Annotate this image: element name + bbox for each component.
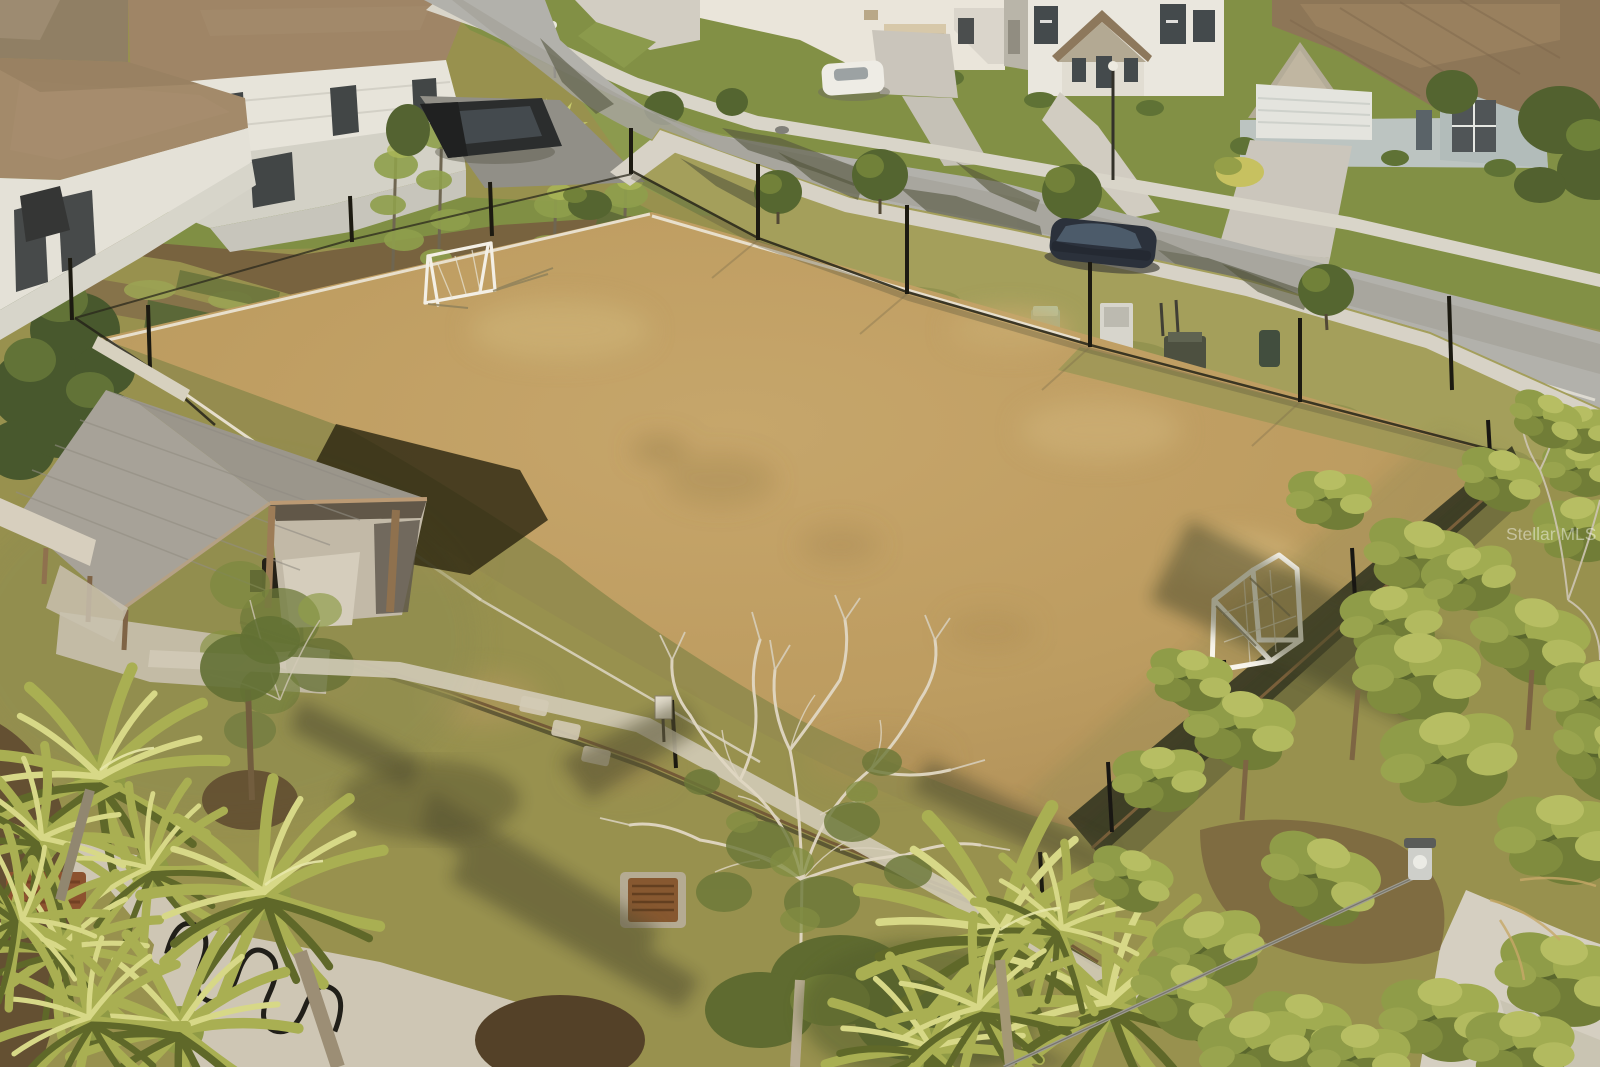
svg-text:Stellar MLS: Stellar MLS xyxy=(1506,524,1596,544)
